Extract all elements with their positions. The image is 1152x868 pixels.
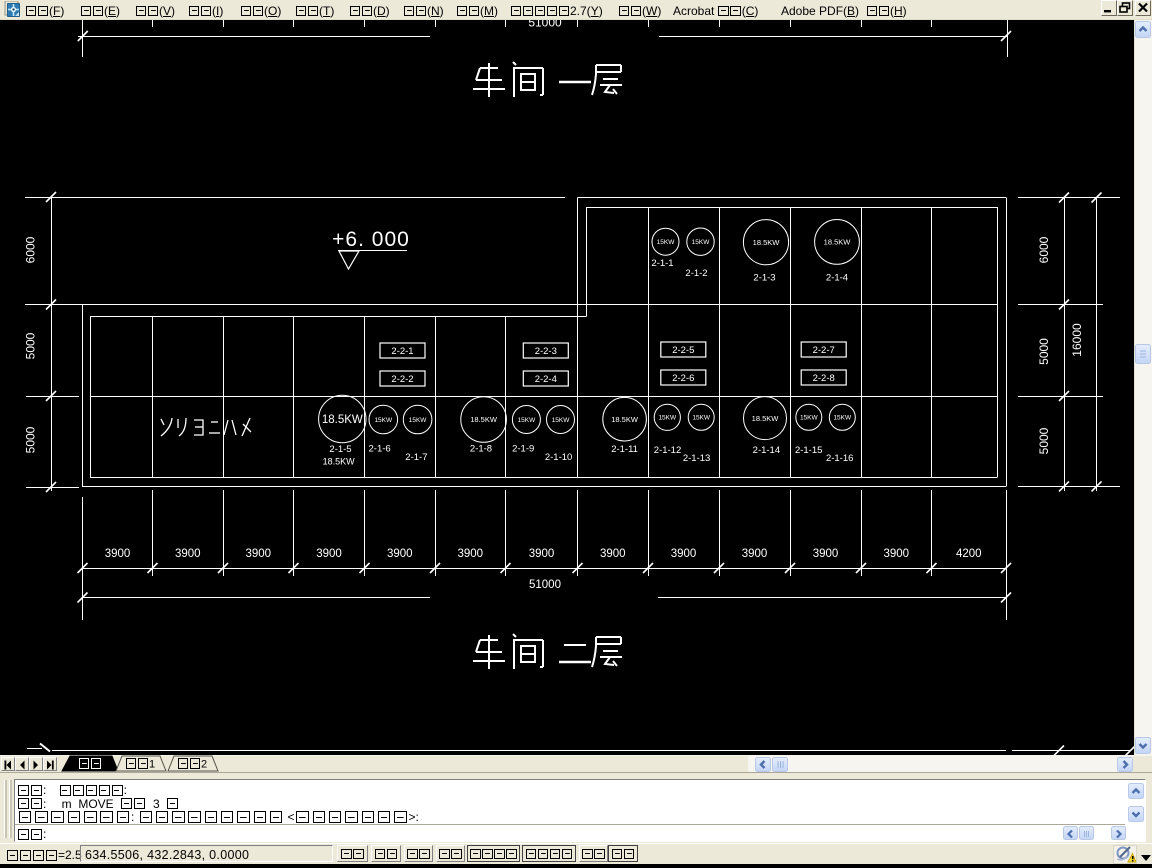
svg-text:18.5KW: 18.5KW (322, 414, 363, 426)
svg-text:2-1-2: 2-1-2 (685, 268, 707, 279)
svg-text:2-1-9: 2-1-9 (512, 444, 534, 455)
svg-text:2-2-6: 2-2-6 (672, 373, 694, 384)
svg-text:2-2-7: 2-2-7 (813, 345, 835, 356)
svg-text:18.5KW: 18.5KW (323, 457, 356, 467)
svg-text:2-2-1: 2-2-1 (391, 346, 413, 357)
svg-text:2-1-16: 2-1-16 (826, 453, 853, 464)
svg-text:2-1-14: 2-1-14 (753, 445, 780, 456)
svg-text:15KW: 15KW (692, 239, 711, 246)
svg-text:3900: 3900 (316, 548, 342, 560)
svg-text:15KW: 15KW (552, 417, 571, 424)
svg-text:2-1-10: 2-1-10 (545, 452, 572, 463)
svg-text:5000: 5000 (24, 426, 38, 453)
svg-text:3900: 3900 (671, 548, 697, 560)
svg-text:2-2-3: 2-2-3 (535, 346, 557, 357)
svg-text:15KW: 15KW (800, 415, 819, 422)
svg-text:2-2-8: 2-2-8 (813, 373, 835, 384)
svg-text:4200: 4200 (956, 548, 982, 560)
svg-text:3900: 3900 (175, 548, 201, 560)
svg-text:18.5KW: 18.5KW (752, 414, 780, 423)
svg-text:2-1-15: 2-1-15 (795, 445, 822, 456)
svg-text:5000: 5000 (1037, 427, 1051, 454)
svg-text:2-1-1: 2-1-1 (651, 258, 673, 269)
svg-text:15KW: 15KW (518, 417, 537, 424)
svg-text:2-1-12: 2-1-12 (654, 445, 681, 456)
svg-text:2-2-2: 2-2-2 (391, 374, 413, 385)
svg-text:15KW: 15KW (833, 415, 852, 422)
svg-text:2-2-5: 2-2-5 (672, 345, 694, 356)
svg-text:6000: 6000 (1037, 236, 1051, 263)
svg-text:18.5KW: 18.5KW (824, 238, 852, 247)
svg-text:3900: 3900 (742, 548, 768, 560)
svg-text:16000: 16000 (1070, 323, 1084, 357)
svg-text:2-2-4: 2-2-4 (535, 374, 557, 385)
svg-text:5000: 5000 (24, 332, 38, 359)
svg-text:18.5KW: 18.5KW (753, 238, 781, 247)
svg-text:2-1-6: 2-1-6 (369, 444, 391, 455)
svg-text:3900: 3900 (105, 548, 131, 560)
svg-text:15KW: 15KW (657, 239, 676, 246)
svg-text:51000: 51000 (529, 579, 561, 591)
svg-text:15KW: 15KW (692, 415, 711, 422)
svg-text:3900: 3900 (457, 548, 483, 560)
svg-text:2-1-4: 2-1-4 (826, 273, 848, 284)
svg-text:15KW: 15KW (409, 417, 428, 424)
svg-text:18.5KW: 18.5KW (470, 415, 498, 424)
svg-text:3900: 3900 (387, 548, 413, 560)
svg-text:3900: 3900 (600, 548, 626, 560)
svg-text:2-1-13: 2-1-13 (683, 453, 710, 464)
svg-text:6000: 6000 (24, 236, 38, 263)
svg-text:3900: 3900 (883, 548, 909, 560)
svg-text:15KW: 15KW (658, 415, 677, 422)
svg-text:2-1-7: 2-1-7 (405, 452, 427, 463)
svg-text:18.5KW: 18.5KW (611, 415, 639, 424)
svg-text:15KW: 15KW (374, 417, 393, 424)
svg-text:3900: 3900 (529, 548, 555, 560)
svg-text:2-1-3: 2-1-3 (753, 273, 775, 284)
svg-text:5000: 5000 (1037, 338, 1051, 365)
svg-text:3900: 3900 (245, 548, 271, 560)
svg-text:51000: 51000 (528, 20, 562, 30)
svg-text:2-1-11: 2-1-11 (611, 444, 638, 455)
svg-text:+6. 000: +6. 000 (332, 228, 410, 251)
svg-text:2-1-8: 2-1-8 (470, 444, 492, 455)
svg-text:3900: 3900 (813, 548, 839, 560)
svg-text:2-1-5: 2-1-5 (329, 444, 351, 455)
